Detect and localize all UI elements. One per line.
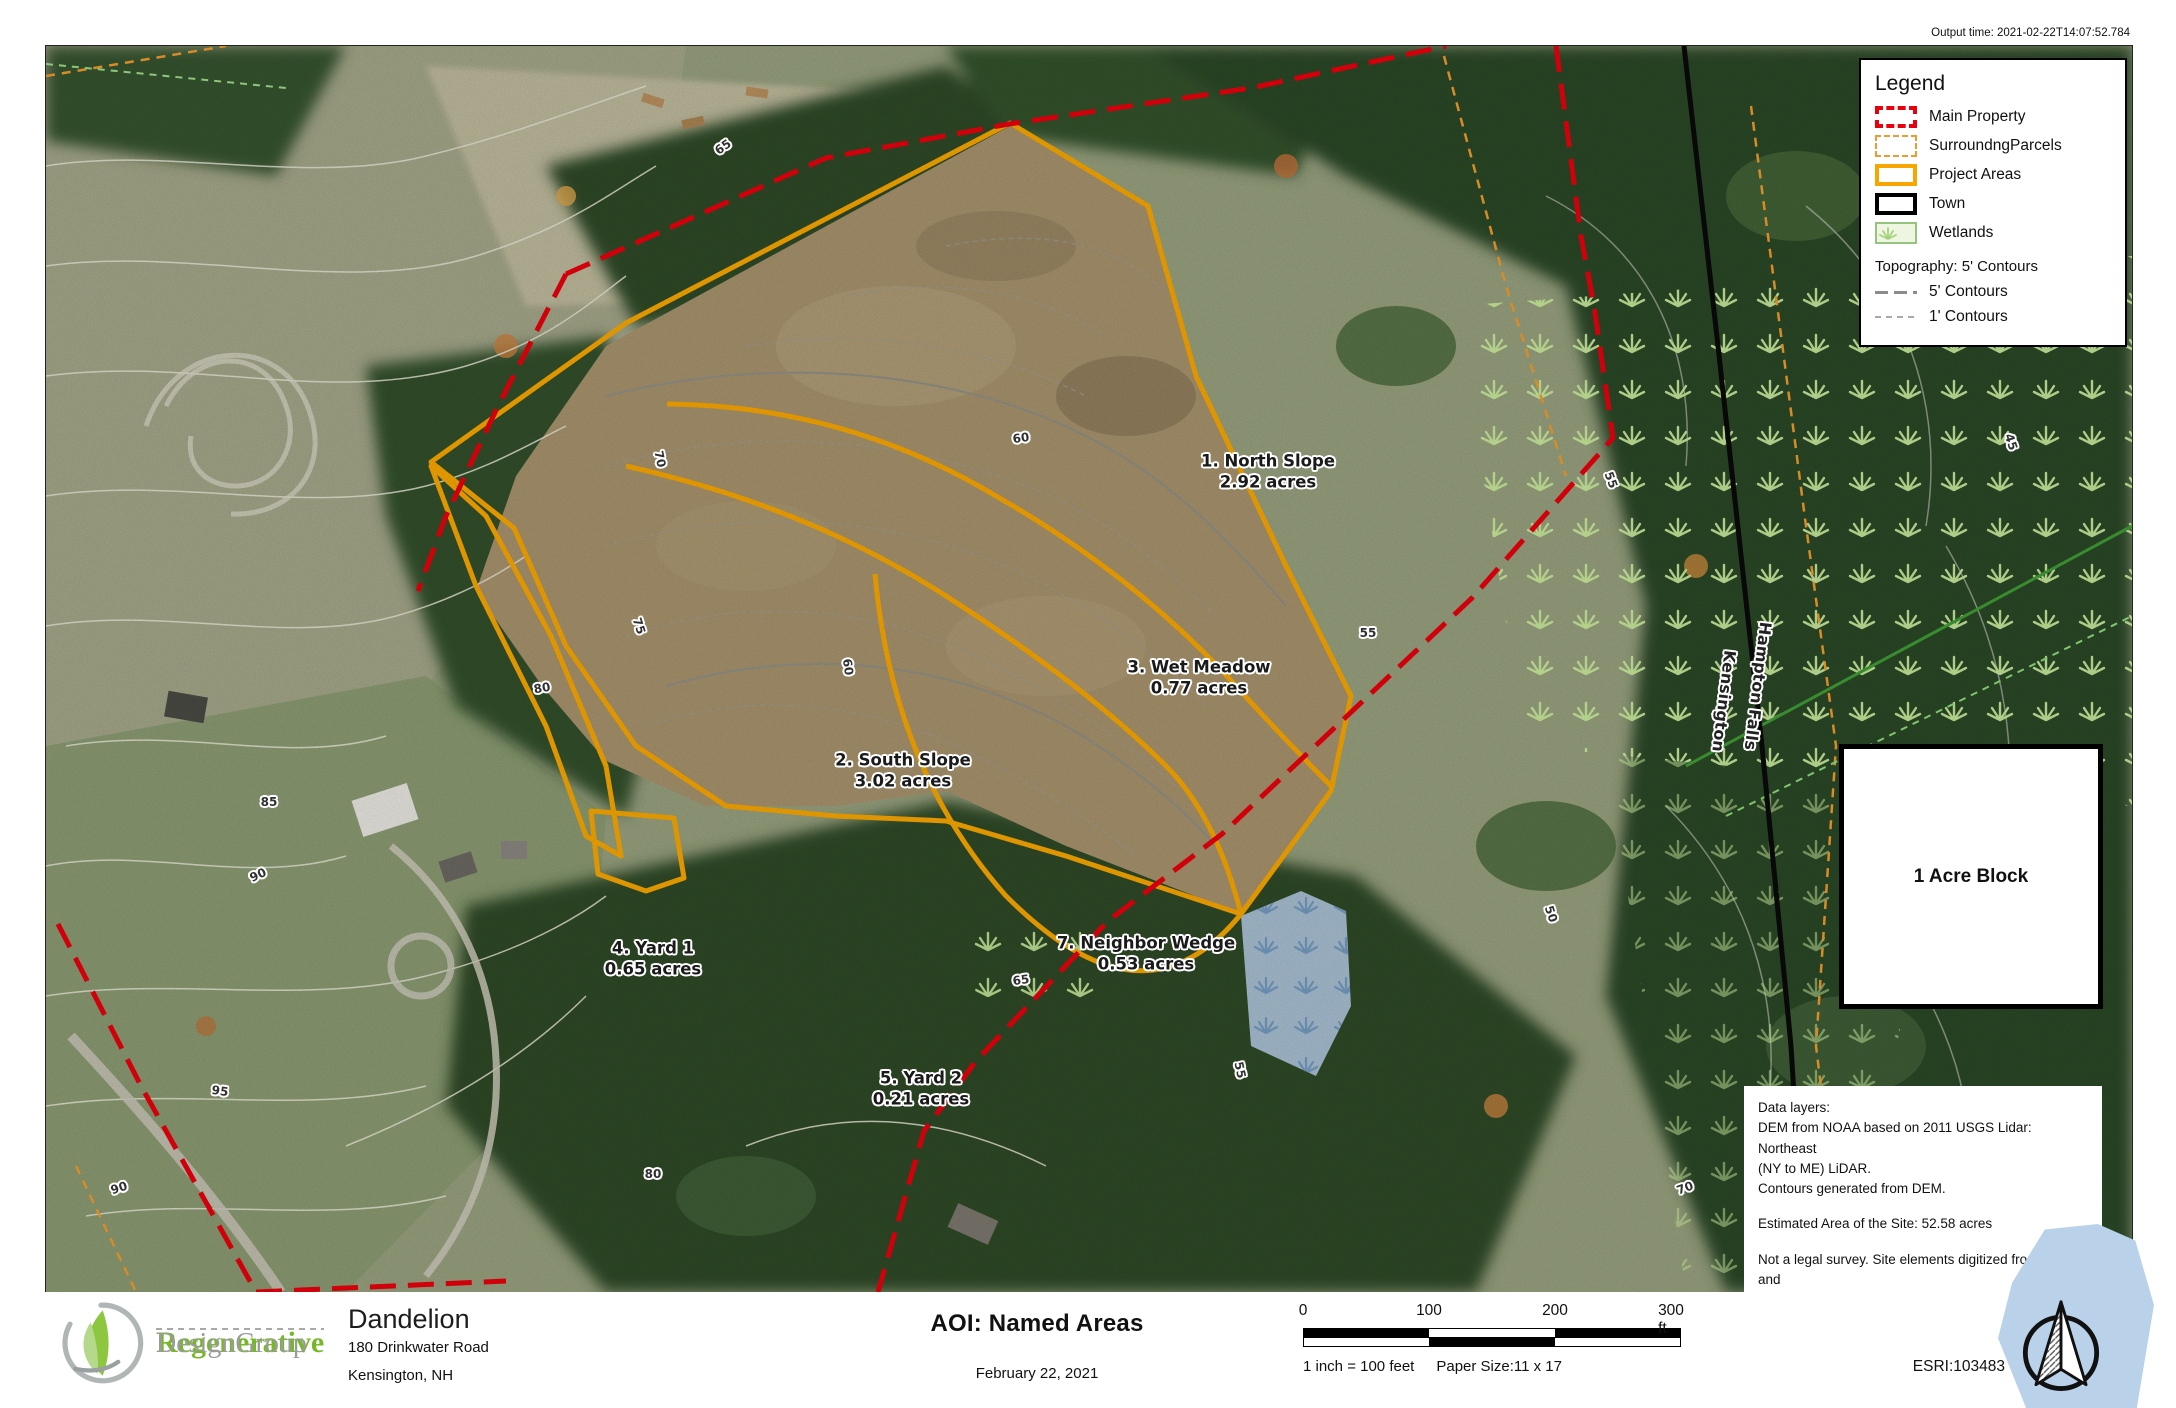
area-label-south-slope: 2. South Slope3.02 acres (835, 750, 971, 793)
legend-item-town: Town (1875, 193, 2111, 215)
esri-credit: ESRI:103483 (1860, 1358, 2005, 1376)
contour-label: 80 (645, 1167, 662, 1181)
contour-5ft-swatch (1875, 291, 1917, 294)
project-name: Dandelion (348, 1304, 489, 1335)
scale-tick-100: 100 (1416, 1302, 1442, 1320)
project-info: Dandelion 180 Drinkwater Road Kensington… (348, 1304, 489, 1384)
output-timestamp: Output time: 2021-02-22T14:07:52.784 (1900, 27, 2130, 39)
scale-tick-200: 200 (1542, 1302, 1568, 1320)
area-label-neighbor-wedge: 7. Neighbor Wedge0.53 acres (1057, 933, 1235, 976)
title-block: Regenerative DesignGroup Dandelion 180 D… (0, 1292, 2176, 1408)
map-date: February 22, 2021 (797, 1365, 1277, 1382)
wetland-sprig-icon (1877, 223, 1899, 243)
area-label-yard-1: 4. Yard 10.65 acres (605, 938, 702, 981)
wetlands-swatch (1875, 222, 1917, 244)
legend-item-5ft-contours: 5' Contours (1875, 283, 2111, 301)
map-sheet: Output time: 2021-02-22T14:07:52.784 (0, 0, 2176, 1408)
leaf-logo-icon (58, 1300, 144, 1386)
notes-line: Estimated Area of the Site: 52.58 acres (1758, 1214, 2088, 1234)
company-logo: Regenerative DesignGroup (58, 1300, 324, 1386)
project-address-line2: Kensington, NH (348, 1367, 489, 1384)
scale-bar-graphic (1303, 1328, 1681, 1347)
scale-tick-0: 0 (1299, 1302, 1308, 1320)
notes-line: Data layers: (1758, 1098, 2088, 1118)
surrounding-parcels-swatch (1875, 135, 1917, 157)
map-title-block: AOI: Named Areas February 22, 2021 (797, 1310, 1277, 1382)
scale-note: 1 inch = 100 feetPaper Size:11 x 17 (1303, 1358, 1562, 1375)
legend: Legend Main Property SurroundngParcels P… (1859, 58, 2127, 347)
area-label-north-slope: 1. North Slope2.92 acres (1201, 451, 1335, 494)
acre-block: 1 Acre Block (1839, 744, 2103, 1009)
notes-line: DEM from NOAA based on 2011 USGS Lidar: … (1758, 1118, 2088, 1159)
town-swatch (1875, 193, 1917, 215)
project-areas-swatch (1875, 164, 1917, 186)
map-title: AOI: Named Areas (797, 1310, 1277, 1338)
scale-bar: 0 100 200 300 ft (1303, 1302, 1681, 1347)
map-canvas: 1. North Slope2.92 acres 2. South Slope3… (45, 45, 2133, 1293)
contour-label: 65 (1012, 972, 1030, 988)
area-label-yard-2: 5. Yard 20.21 acres (873, 1068, 970, 1111)
notes-line: (NY to ME) LiDAR. (1758, 1159, 2088, 1179)
area-label-wet-meadow: 3. Wet Meadow0.77 acres (1127, 657, 1270, 700)
paper-size-text: Paper Size:11 x 17 (1436, 1358, 1562, 1375)
company-name: Regenerative DesignGroup (156, 1328, 324, 1359)
contour-1ft-swatch (1875, 316, 1917, 318)
legend-item-project-areas: Project Areas (1875, 164, 2111, 186)
north-arrow-icon (2008, 1297, 2114, 1403)
legend-title: Legend (1875, 72, 2111, 96)
contour-label: 60 (1012, 430, 1030, 446)
project-address-line1: 180 Drinkwater Road (348, 1339, 489, 1356)
scale-tick-300: 300 ft (1658, 1302, 1684, 1338)
acre-block-label: 1 Acre Block (1914, 866, 2028, 888)
contour-label: 80 (533, 680, 552, 697)
main-property-swatch (1875, 106, 1917, 128)
contour-label: 95 (211, 1083, 229, 1099)
contour-label: 85 (261, 795, 278, 809)
contour-label: 55 (1360, 626, 1377, 640)
legend-item-1ft-contours: 1' Contours (1875, 308, 2111, 326)
legend-item-main-property: Main Property (1875, 106, 2111, 128)
legend-item-surrounding-parcels: SurroundngParcels (1875, 135, 2111, 157)
scale-ratio-text: 1 inch = 100 feet (1303, 1358, 1414, 1375)
contour-label: 60 (840, 658, 856, 676)
notes-line: Contours generated from DEM. (1758, 1179, 2088, 1199)
scale-ticks: 0 100 200 300 ft (1303, 1302, 1681, 1322)
topography-title: Topography: 5' Contours (1875, 258, 2111, 275)
legend-item-wetlands: Wetlands (1875, 222, 2111, 244)
